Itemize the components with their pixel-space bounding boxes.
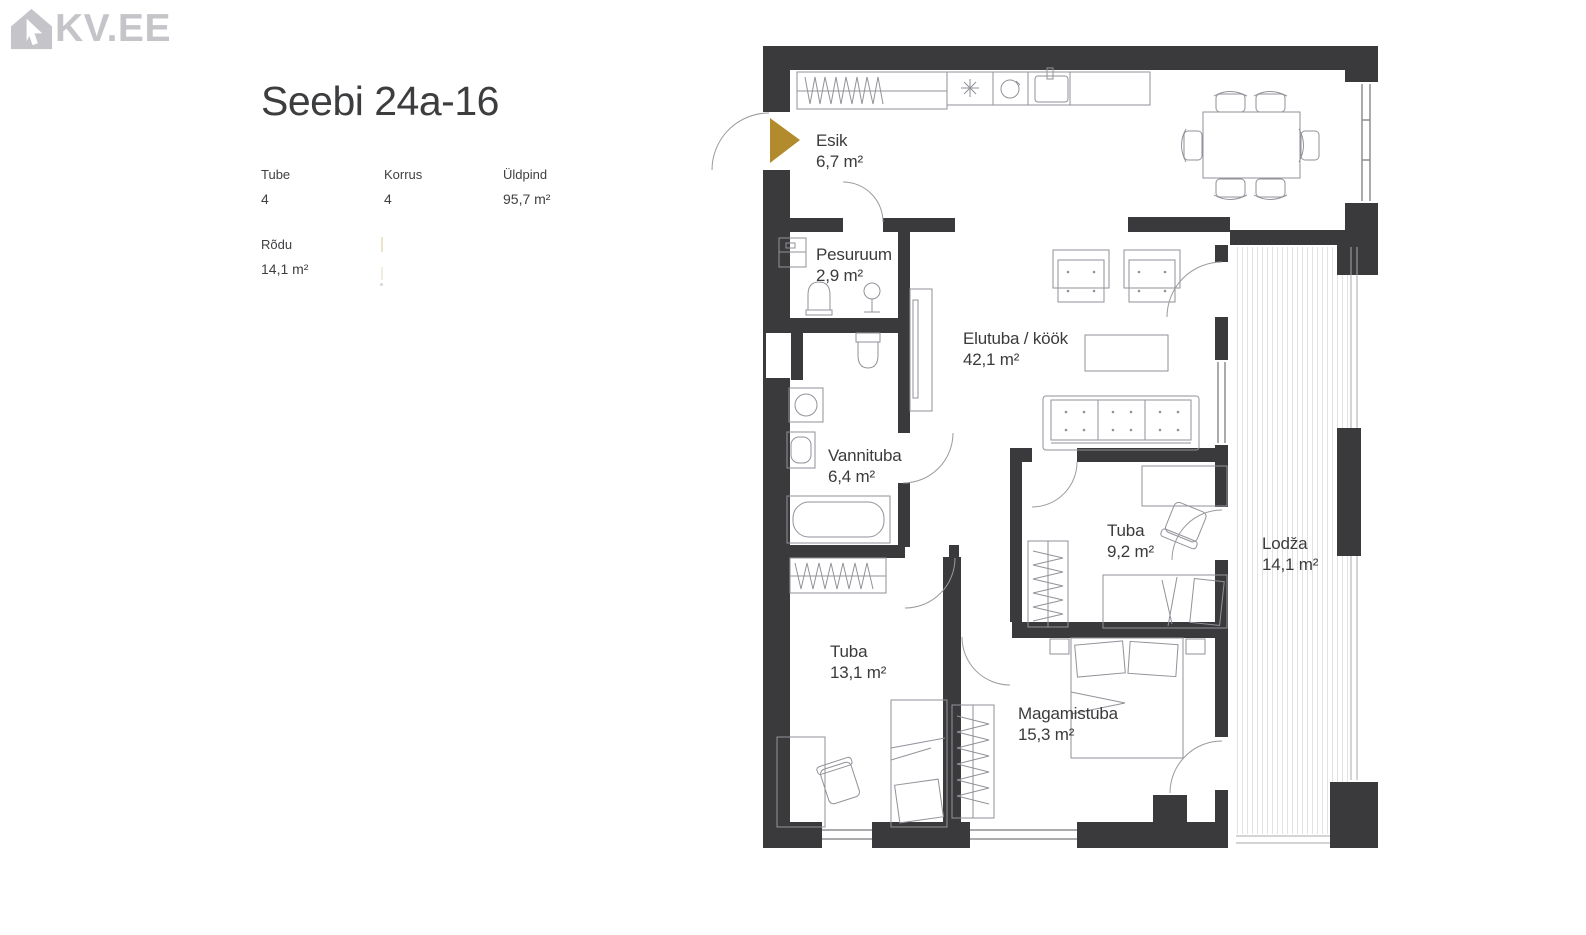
- room-area-esik: 6,7 m²: [816, 152, 864, 171]
- pesuruum-door-arc: [843, 182, 883, 222]
- room-area-elutuba: 42,1 m²: [963, 350, 1020, 369]
- bed-icon: [891, 700, 947, 827]
- bed-icon: [1103, 575, 1227, 628]
- fridge-icon: [961, 79, 979, 97]
- duct-niche: [766, 333, 791, 378]
- coffee-table: [1085, 335, 1168, 371]
- washbasin-icon: [787, 432, 815, 468]
- vannituba-door-arc: [903, 433, 953, 483]
- room-label-magamistuba: Magamistuba: [1018, 704, 1119, 723]
- chair-icon: [1160, 500, 1209, 549]
- kitchen-sink-icon: [1035, 68, 1068, 102]
- dining-chairs: [1182, 92, 1320, 200]
- desk-icon: [1142, 466, 1227, 506]
- room-label-tuba13: Tuba: [830, 642, 868, 661]
- armchair-icon: [1053, 250, 1109, 302]
- dining-table: [1203, 112, 1300, 178]
- bathtub-icon: [787, 496, 890, 543]
- toilet-icon: [856, 333, 880, 368]
- entrance-arrow-icon: [770, 118, 800, 163]
- page: KV.EE Seebi 24a-16 Tube 4 Korrus 4 Üldpi…: [0, 0, 1586, 935]
- nightstand-icon: [1186, 639, 1205, 654]
- nightstand-icon: [1050, 639, 1069, 654]
- entrance-door-arc: [712, 113, 769, 170]
- room-area-pesuruum: 2,9 m²: [816, 266, 864, 285]
- magamistuba-door-arc: [962, 637, 1010, 685]
- tuba9-door-arc: [1032, 462, 1077, 507]
- room-label-lodza: Lodža: [1262, 534, 1308, 553]
- wardrobe-icon: [797, 72, 947, 109]
- pedestal-sink-icon: [864, 283, 880, 312]
- room-label-tuba9: Tuba: [1107, 521, 1145, 540]
- wardrobe-icon: [1028, 541, 1068, 627]
- room-label-vannituba: Vannituba: [828, 446, 902, 465]
- room-area-magamistuba: 15,3 m²: [1018, 725, 1075, 744]
- double-bed-icon: [1071, 638, 1183, 758]
- room-area-lodza: 14,1 m²: [1262, 555, 1319, 574]
- chair-icon: [816, 757, 863, 806]
- tv-cabinet: [910, 289, 932, 411]
- wardrobe-icon: [790, 558, 886, 593]
- room-label-elutuba: Elutuba / köök: [963, 329, 1069, 348]
- room-area-tuba9: 9,2 m²: [1107, 542, 1155, 561]
- sofa-icon: [1043, 396, 1199, 450]
- floor-plan: Esik 6,7 m² Pesuruum 2,9 m² Elutuba / kö…: [0, 0, 1586, 935]
- room-area-vannituba: 6,4 m²: [828, 467, 876, 486]
- hob-icon: [1001, 80, 1020, 98]
- room-area-tuba13: 13,1 m²: [830, 663, 887, 682]
- room-label-esik: Esik: [816, 131, 848, 150]
- toilet-icon: [806, 282, 832, 315]
- magamistuba-loggia-door-arc: [1170, 741, 1222, 793]
- room-label-pesuruum: Pesuruum: [816, 245, 892, 264]
- washing-machine-icon: [789, 388, 823, 422]
